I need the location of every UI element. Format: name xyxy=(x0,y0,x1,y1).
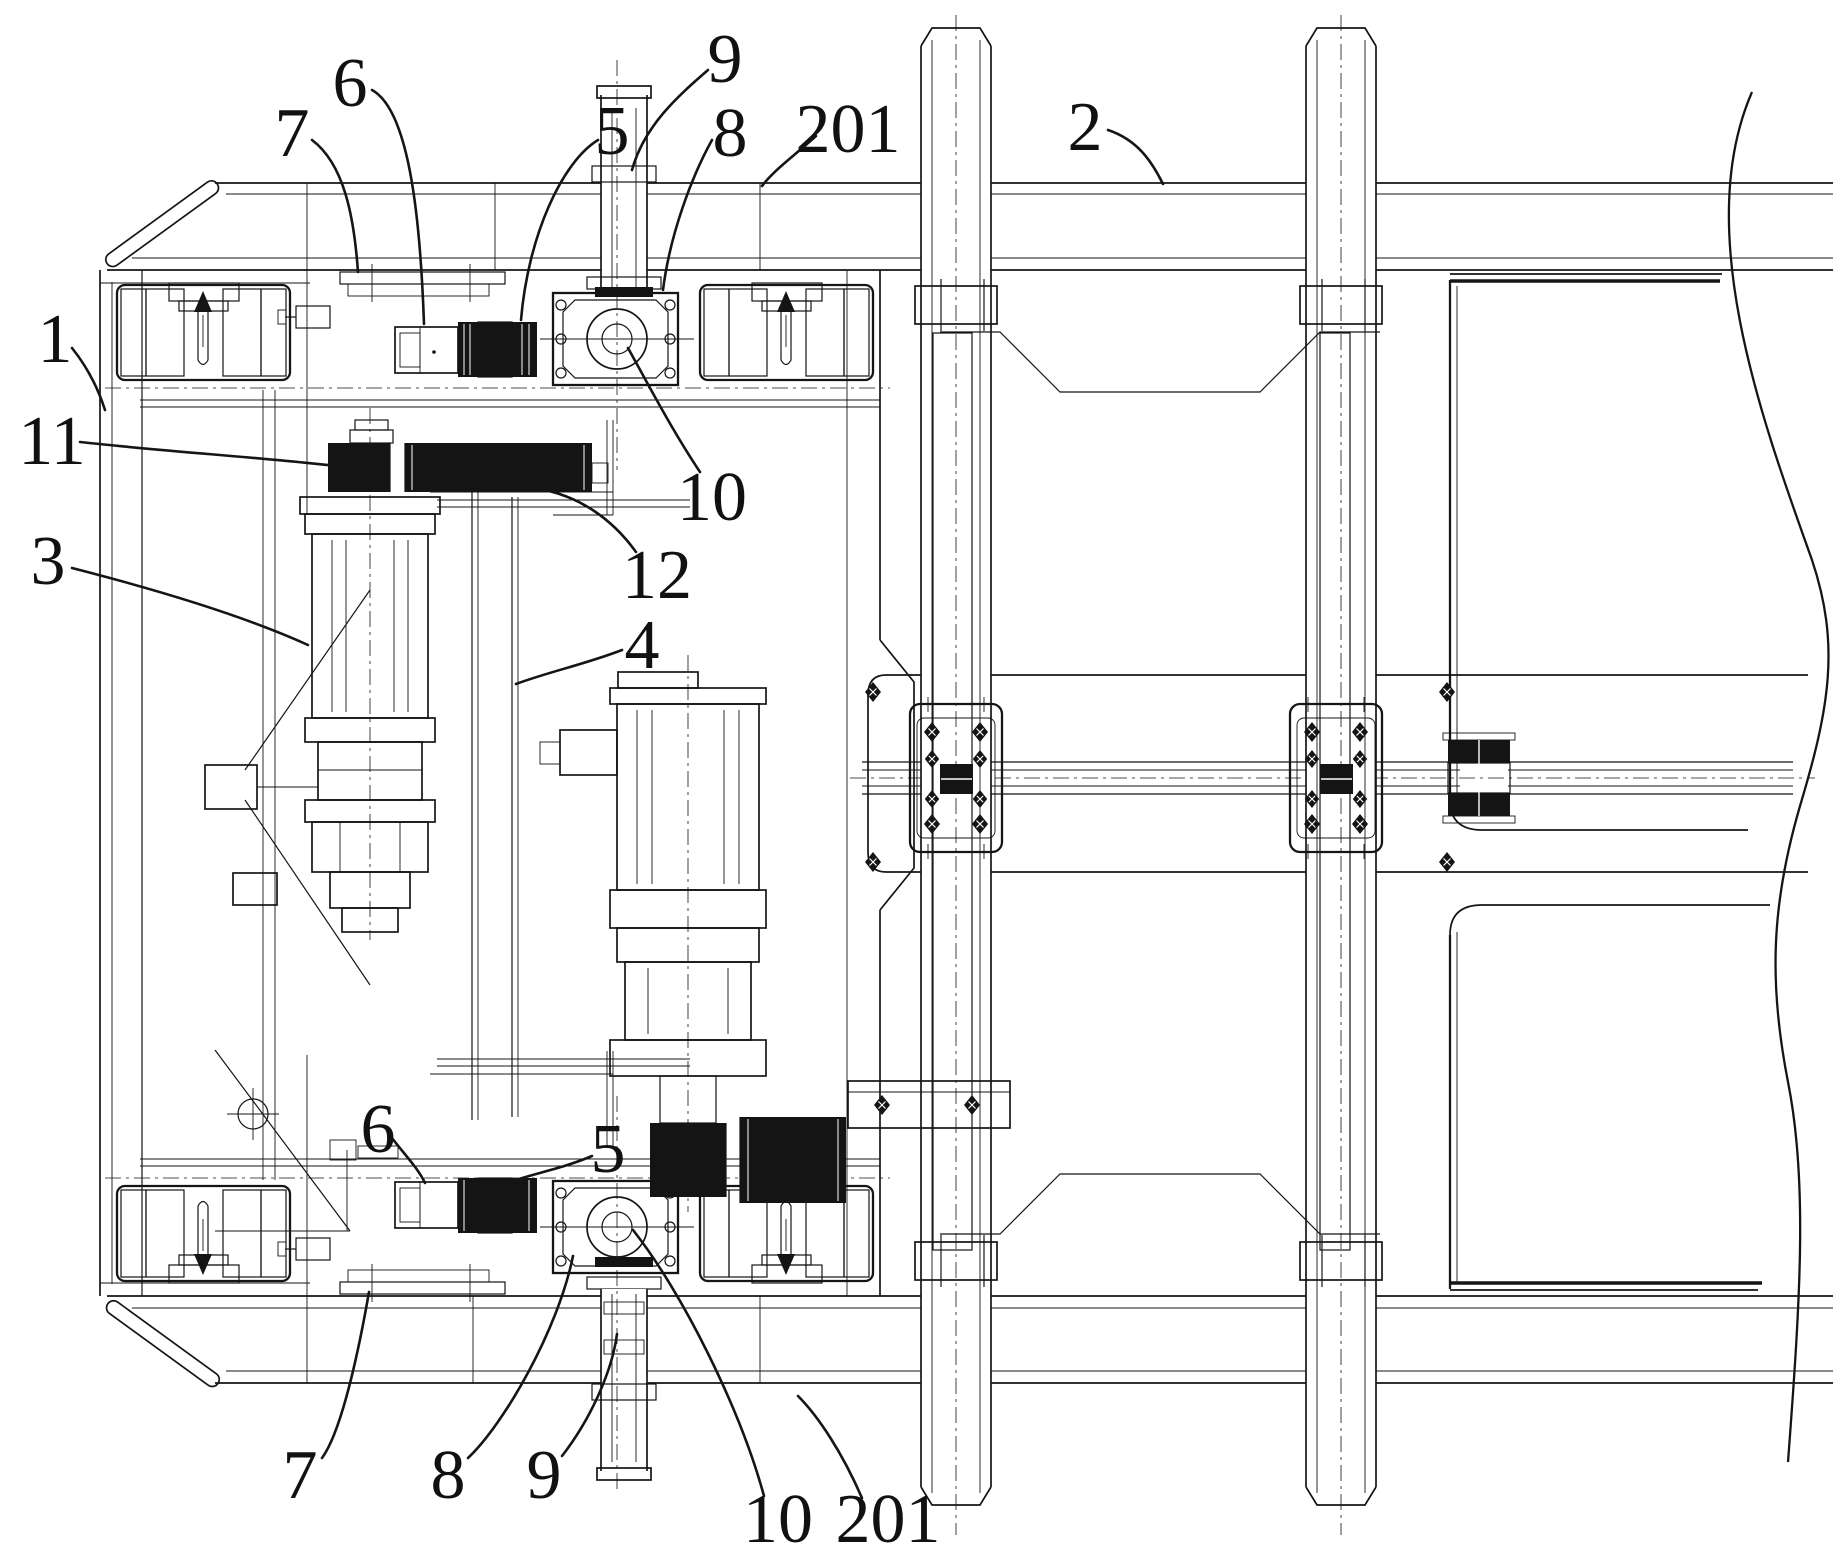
callout-label-4: 4 xyxy=(625,607,660,684)
callout-leader-11 xyxy=(80,442,354,468)
coupling-housing-top xyxy=(395,327,458,373)
bottom-drive-assembly xyxy=(278,1096,694,1490)
guide-rails xyxy=(915,15,1382,1535)
callout-leader-6 xyxy=(372,90,424,324)
callout-label-8: 8 xyxy=(431,1437,466,1514)
right-panels xyxy=(1450,274,1770,1290)
callout-label-201: 201 xyxy=(796,91,901,168)
callout-label-9: 9 xyxy=(708,21,743,98)
callout-leader-7 xyxy=(322,1292,369,1458)
callout-label-11: 11 xyxy=(18,403,85,480)
callout-label-6: 6 xyxy=(333,45,368,122)
callout-leader-8 xyxy=(663,140,712,290)
callout-leader-10 xyxy=(633,1230,764,1496)
datum-target-icon xyxy=(227,1088,279,1140)
callout-label-7: 7 xyxy=(283,1437,318,1514)
callout-leader-5 xyxy=(513,1156,592,1181)
callout-label-6: 6 xyxy=(361,1091,396,1168)
callout-label-1: 1 xyxy=(38,301,73,378)
callout-leader-7 xyxy=(312,140,358,272)
callout-label-3: 3 xyxy=(31,523,66,600)
callout-leader-2 xyxy=(1108,130,1163,184)
drive-gear-5-top xyxy=(458,322,537,377)
callout-label-2: 2 xyxy=(1068,89,1103,166)
callout-label-10: 10 xyxy=(743,1481,813,1547)
callout-leader-6 xyxy=(392,1138,425,1183)
callout-label-12: 12 xyxy=(622,537,692,614)
coupling-housing-bottom xyxy=(395,1182,458,1228)
callout-leader-3 xyxy=(72,568,308,645)
drive-gear-5-bottom xyxy=(458,1178,537,1233)
top-drive-assembly xyxy=(278,60,694,492)
callout-leader-10 xyxy=(628,348,700,472)
callout-label-10: 10 xyxy=(677,459,747,536)
callout-label-5: 5 xyxy=(595,93,630,170)
technical-drawing-canvas: 1113765982012101246578910201 xyxy=(0,0,1833,1547)
callout-label-5: 5 xyxy=(591,1111,626,1188)
shaft-nut-top xyxy=(350,420,393,443)
callout-leader-8 xyxy=(468,1256,573,1458)
main-gear-12 xyxy=(390,443,608,492)
callout-label-8: 8 xyxy=(713,95,748,172)
patent-figure-page: 1113765982012101246578910201 xyxy=(0,0,1833,1547)
paper-break-line xyxy=(1729,92,1829,1462)
callout-label-9: 9 xyxy=(527,1437,562,1514)
callout-label-7: 7 xyxy=(275,95,310,172)
callout-leader-4 xyxy=(516,650,622,684)
callout-label-201: 201 xyxy=(836,1481,941,1547)
pinion-11 xyxy=(328,443,390,492)
